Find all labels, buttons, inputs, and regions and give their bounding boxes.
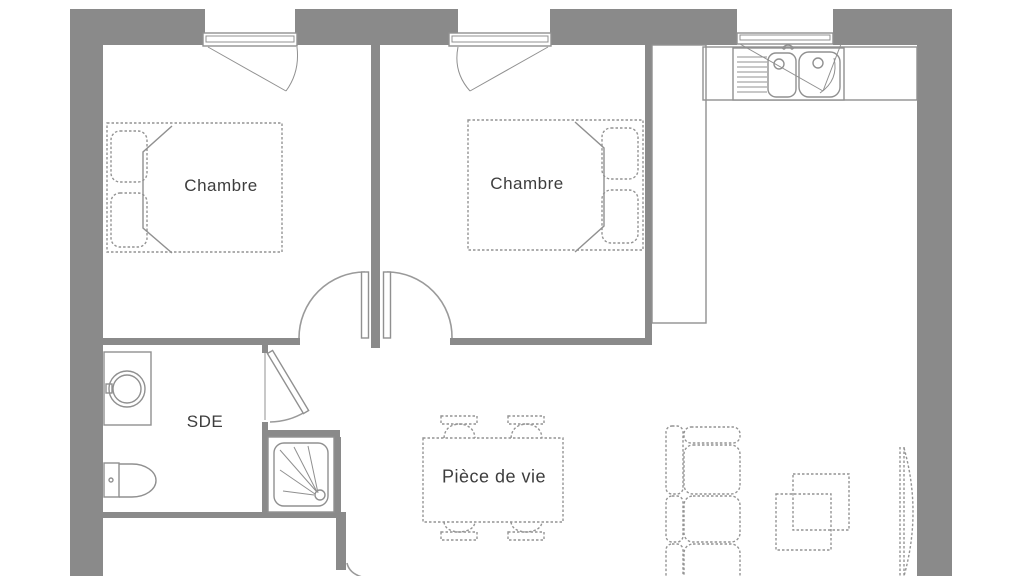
door-bedroom2-icon [384, 272, 453, 338]
room-label-bathroom: SDE [187, 412, 223, 432]
kitchen-sink-icon [733, 44, 844, 100]
door-bathroom-icon [265, 350, 309, 422]
room-label-living: Pièce de vie [442, 467, 546, 488]
window-kitchen-icon [737, 33, 833, 44]
floor-plan: Chambre Chambre SDE Pièce de vie [0, 0, 1024, 576]
tv-console [900, 447, 913, 576]
shower-icon [268, 437, 334, 512]
dining-chair [508, 522, 544, 540]
washing-machine-icon [104, 352, 151, 425]
toilet-icon [104, 463, 156, 497]
room-label-bedroom2: Chambre [490, 174, 563, 194]
dining-chair [441, 522, 477, 540]
window-bedroom2-icon [449, 33, 551, 91]
plan-drawing-layer [0, 0, 1024, 576]
dining-chair [441, 416, 477, 438]
room-label-bedroom1: Chambre [184, 176, 257, 196]
door-entrance-icon [347, 563, 362, 576]
door-bedroom1-icon [299, 272, 369, 338]
kitchen-cabinet [652, 45, 706, 323]
coffee-table [776, 474, 849, 550]
window-bedroom1-icon [203, 33, 298, 91]
sofa [666, 426, 740, 576]
dining-chair [508, 416, 544, 438]
